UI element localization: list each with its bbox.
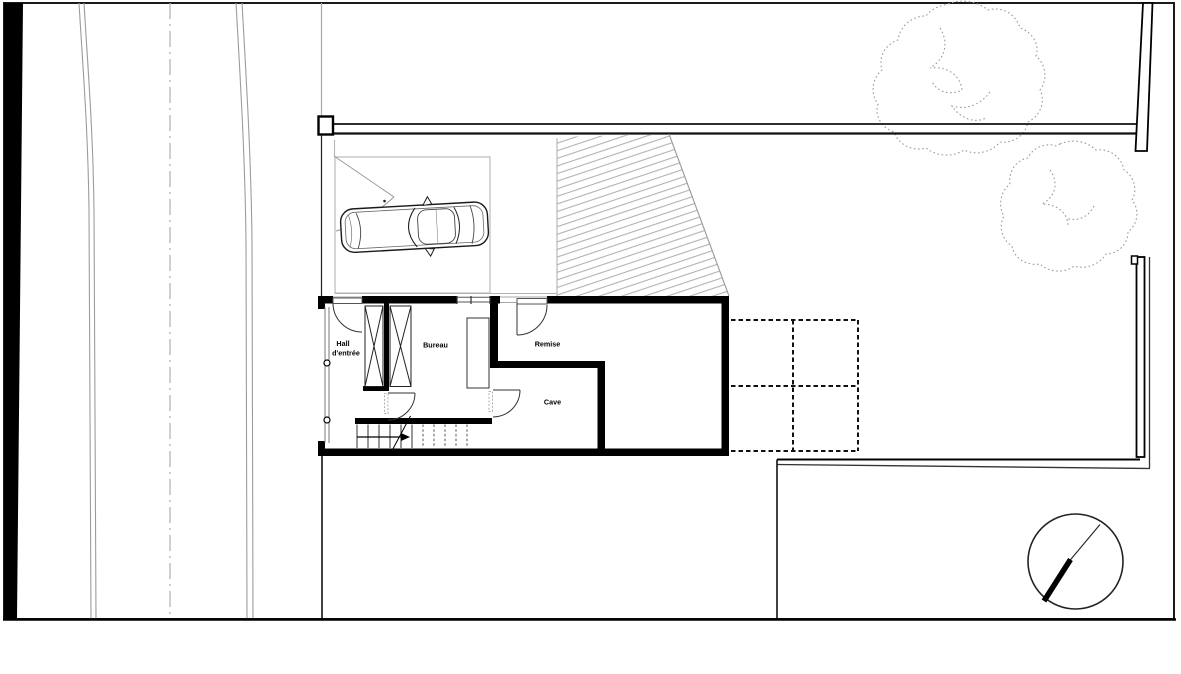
wall-cave-top [490,361,605,368]
room-label-cave: Cave [544,398,561,407]
room-label-hall-line1: Hall [336,339,349,348]
wall [722,296,730,456]
wall-bureau-remise [490,304,498,363]
wall [318,441,325,456]
column-symbol [324,360,330,366]
sheet-border [4,3,1174,619]
room-label-hall-line2: d'entrée [332,349,360,358]
wall-stairwell [355,418,492,424]
wall [318,296,325,309]
wall [490,296,500,304]
room-label-remise: Remise [535,340,561,349]
wall [318,449,729,457]
gate-post [319,117,334,135]
boundary-wall-east-jog [1132,256,1138,264]
floor-plan-drawing: Hall d'entrée Bureau Remise Cave [0,0,1181,674]
wall [547,296,729,304]
wall-cave-right [598,361,606,451]
remise-door-leaf [517,299,547,305]
wall-hall-bureau [384,303,389,391]
boundary-wall-east [1137,257,1145,457]
entry-door-leaf [333,298,362,304]
column-symbol [324,417,330,423]
room-label-bureau: Bureau [423,341,448,350]
wall [362,296,457,304]
